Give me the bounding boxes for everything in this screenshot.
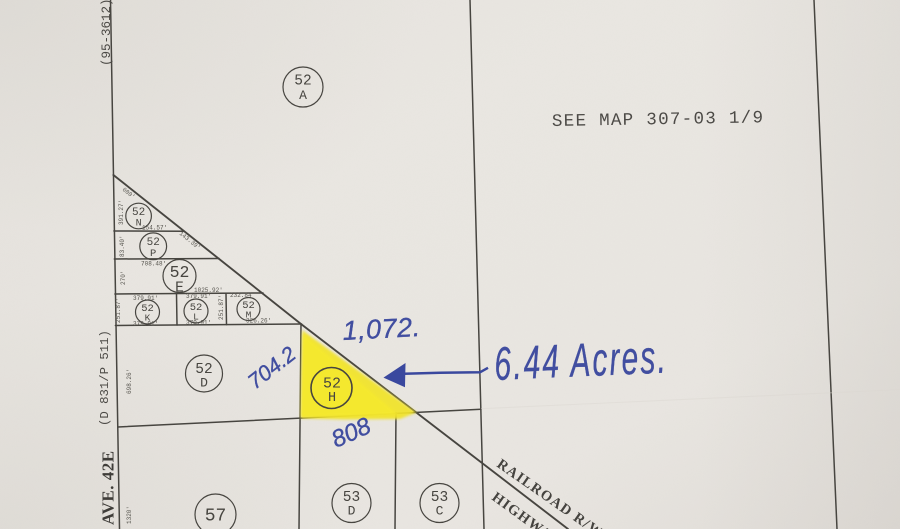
- svg-text:232.84: 232.84: [230, 292, 252, 299]
- svg-text:H: H: [328, 391, 336, 406]
- svg-text:391.27': 391.27': [118, 200, 125, 225]
- svg-text:E: E: [175, 281, 184, 297]
- svg-text:698.26': 698.26': [126, 369, 133, 394]
- svg-text:1320': 1320': [126, 506, 133, 524]
- svg-text:P: P: [150, 248, 156, 260]
- svg-text:D: D: [348, 504, 356, 519]
- svg-text:379.91': 379.91': [133, 321, 158, 328]
- svg-text:AVE. 42E: AVE. 42E: [99, 450, 118, 525]
- svg-text:154.57': 154.57': [142, 225, 167, 232]
- svg-text:251.87': 251.87': [218, 295, 225, 320]
- svg-text:83.40': 83.40': [119, 235, 126, 257]
- svg-text:C: C: [436, 504, 444, 519]
- svg-text:52: 52: [323, 376, 341, 393]
- svg-text:1,072.: 1,072.: [342, 312, 422, 346]
- svg-text:A: A: [299, 88, 307, 103]
- svg-text:270': 270': [120, 271, 127, 285]
- svg-text:6.44 Acres.: 6.44 Acres.: [493, 331, 669, 391]
- svg-text:(D 831/P 511): (D 831/P 511): [98, 330, 112, 426]
- svg-text:708.48': 708.48': [141, 261, 166, 268]
- svg-text:379.91': 379.91': [186, 320, 211, 327]
- svg-text:D: D: [200, 376, 208, 391]
- svg-text:52: 52: [132, 207, 145, 219]
- svg-text:251.87': 251.87': [115, 298, 122, 323]
- svg-text:57: 57: [205, 507, 227, 527]
- svg-text:379.91': 379.91': [186, 293, 211, 300]
- svg-text:SEE MAP 307-03 1/9: SEE MAP 307-03 1/9: [552, 108, 765, 132]
- svg-text:(95-3612): (95-3612): [100, 0, 114, 66]
- svg-text:379.91': 379.91': [133, 295, 158, 302]
- svg-text:N: N: [136, 219, 142, 230]
- svg-text:326.26': 326.26': [246, 318, 271, 325]
- svg-text:52: 52: [170, 263, 190, 282]
